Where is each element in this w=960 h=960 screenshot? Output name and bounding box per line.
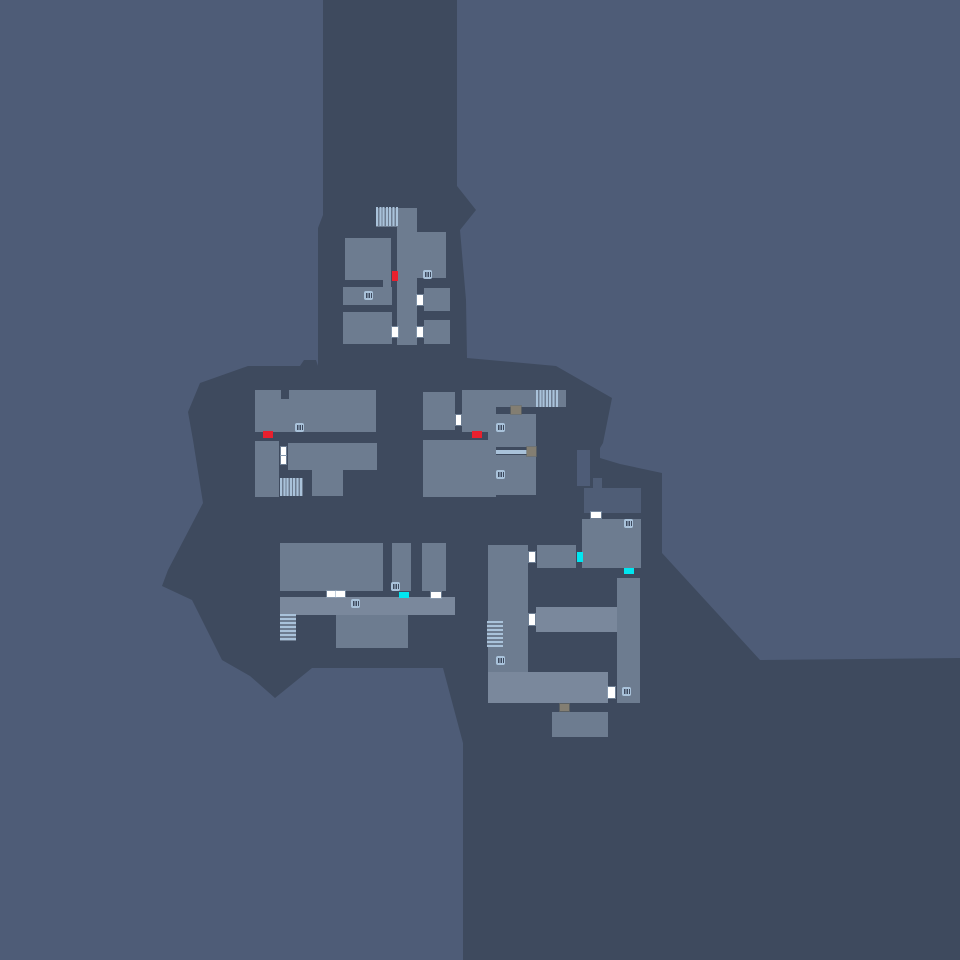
door-marker-cyan: [577, 552, 583, 562]
door-marker-red: [472, 431, 482, 438]
door-marker-white: [417, 295, 423, 305]
map-room-midright-hall-leg: [462, 407, 488, 432]
door-marker-gray: [527, 447, 536, 456]
map-room-botright-south-room: [552, 712, 608, 737]
door-marker-red: [263, 431, 273, 438]
door-marker-red: [392, 271, 398, 281]
map-room-botleft-hall: [280, 597, 455, 615]
map-room-midleft-west: [255, 441, 279, 497]
map-room-botright-tall-east: [617, 578, 640, 703]
vent-icon: [391, 582, 400, 591]
vent-icon: [624, 519, 633, 528]
map-room-midleft-ext: [312, 470, 343, 496]
door-marker-white: [281, 447, 286, 455]
map-room-botleft-south: [336, 615, 408, 648]
ladder-icon: [280, 478, 303, 496]
map-room-botleft-big: [280, 543, 383, 591]
map-room-botleft-east: [422, 543, 446, 591]
vent-icon: [295, 423, 304, 432]
terrain-patch: [577, 450, 590, 486]
vent-icon: [364, 291, 373, 300]
door-marker-white: [417, 327, 423, 337]
game-level-map: [0, 0, 960, 960]
stairs-icon: [280, 614, 296, 641]
map-room-top-corridor: [397, 208, 417, 345]
map-room-midright-small: [423, 392, 455, 430]
vent-icon: [423, 270, 432, 279]
map-room-botright-hall: [536, 607, 617, 632]
door-marker-white: [281, 456, 286, 464]
map-room-top-room-se: [424, 320, 450, 344]
vent-icon: [496, 656, 505, 665]
vent-icon: [622, 687, 631, 696]
door-marker-white: [529, 552, 535, 562]
door-marker-white: [456, 415, 461, 425]
door-marker-gray: [511, 406, 521, 414]
vent-icon: [496, 423, 505, 432]
map-room-midright-big: [423, 440, 488, 497]
window-ledge-blue: [496, 450, 529, 454]
terrain-patch: [281, 390, 289, 399]
door-marker-white: [431, 592, 441, 598]
door-marker-white: [327, 591, 336, 597]
map-room-botright-shaft-room: [584, 488, 641, 513]
door-marker-cyan: [399, 592, 409, 598]
door-marker-gray: [560, 704, 569, 711]
stairs-icon: [487, 621, 503, 647]
vent-icon: [496, 470, 505, 479]
door-marker-white: [392, 327, 398, 337]
map-room-top-room-nw: [345, 238, 391, 280]
door-marker-white: [529, 614, 535, 625]
map-room-midleft-big: [288, 443, 377, 470]
door-marker-white: [608, 687, 615, 698]
map-room-botright-bottom-hall: [488, 672, 608, 703]
map-room-botright-shaft-stub: [593, 478, 602, 488]
map-room-top-room-sw: [343, 312, 392, 344]
ladder-icon: [376, 207, 398, 226]
door-marker-white: [336, 591, 345, 597]
map-room-botright-mid-room: [537, 545, 576, 568]
door-marker-cyan: [624, 568, 634, 574]
map-room-midright-strip: [488, 407, 496, 497]
door-marker-white: [591, 512, 601, 518]
map-room-top-room-e: [424, 288, 450, 311]
vent-icon: [351, 599, 360, 608]
ladder-icon: [536, 390, 558, 407]
map-room-midleft-top: [255, 390, 376, 432]
